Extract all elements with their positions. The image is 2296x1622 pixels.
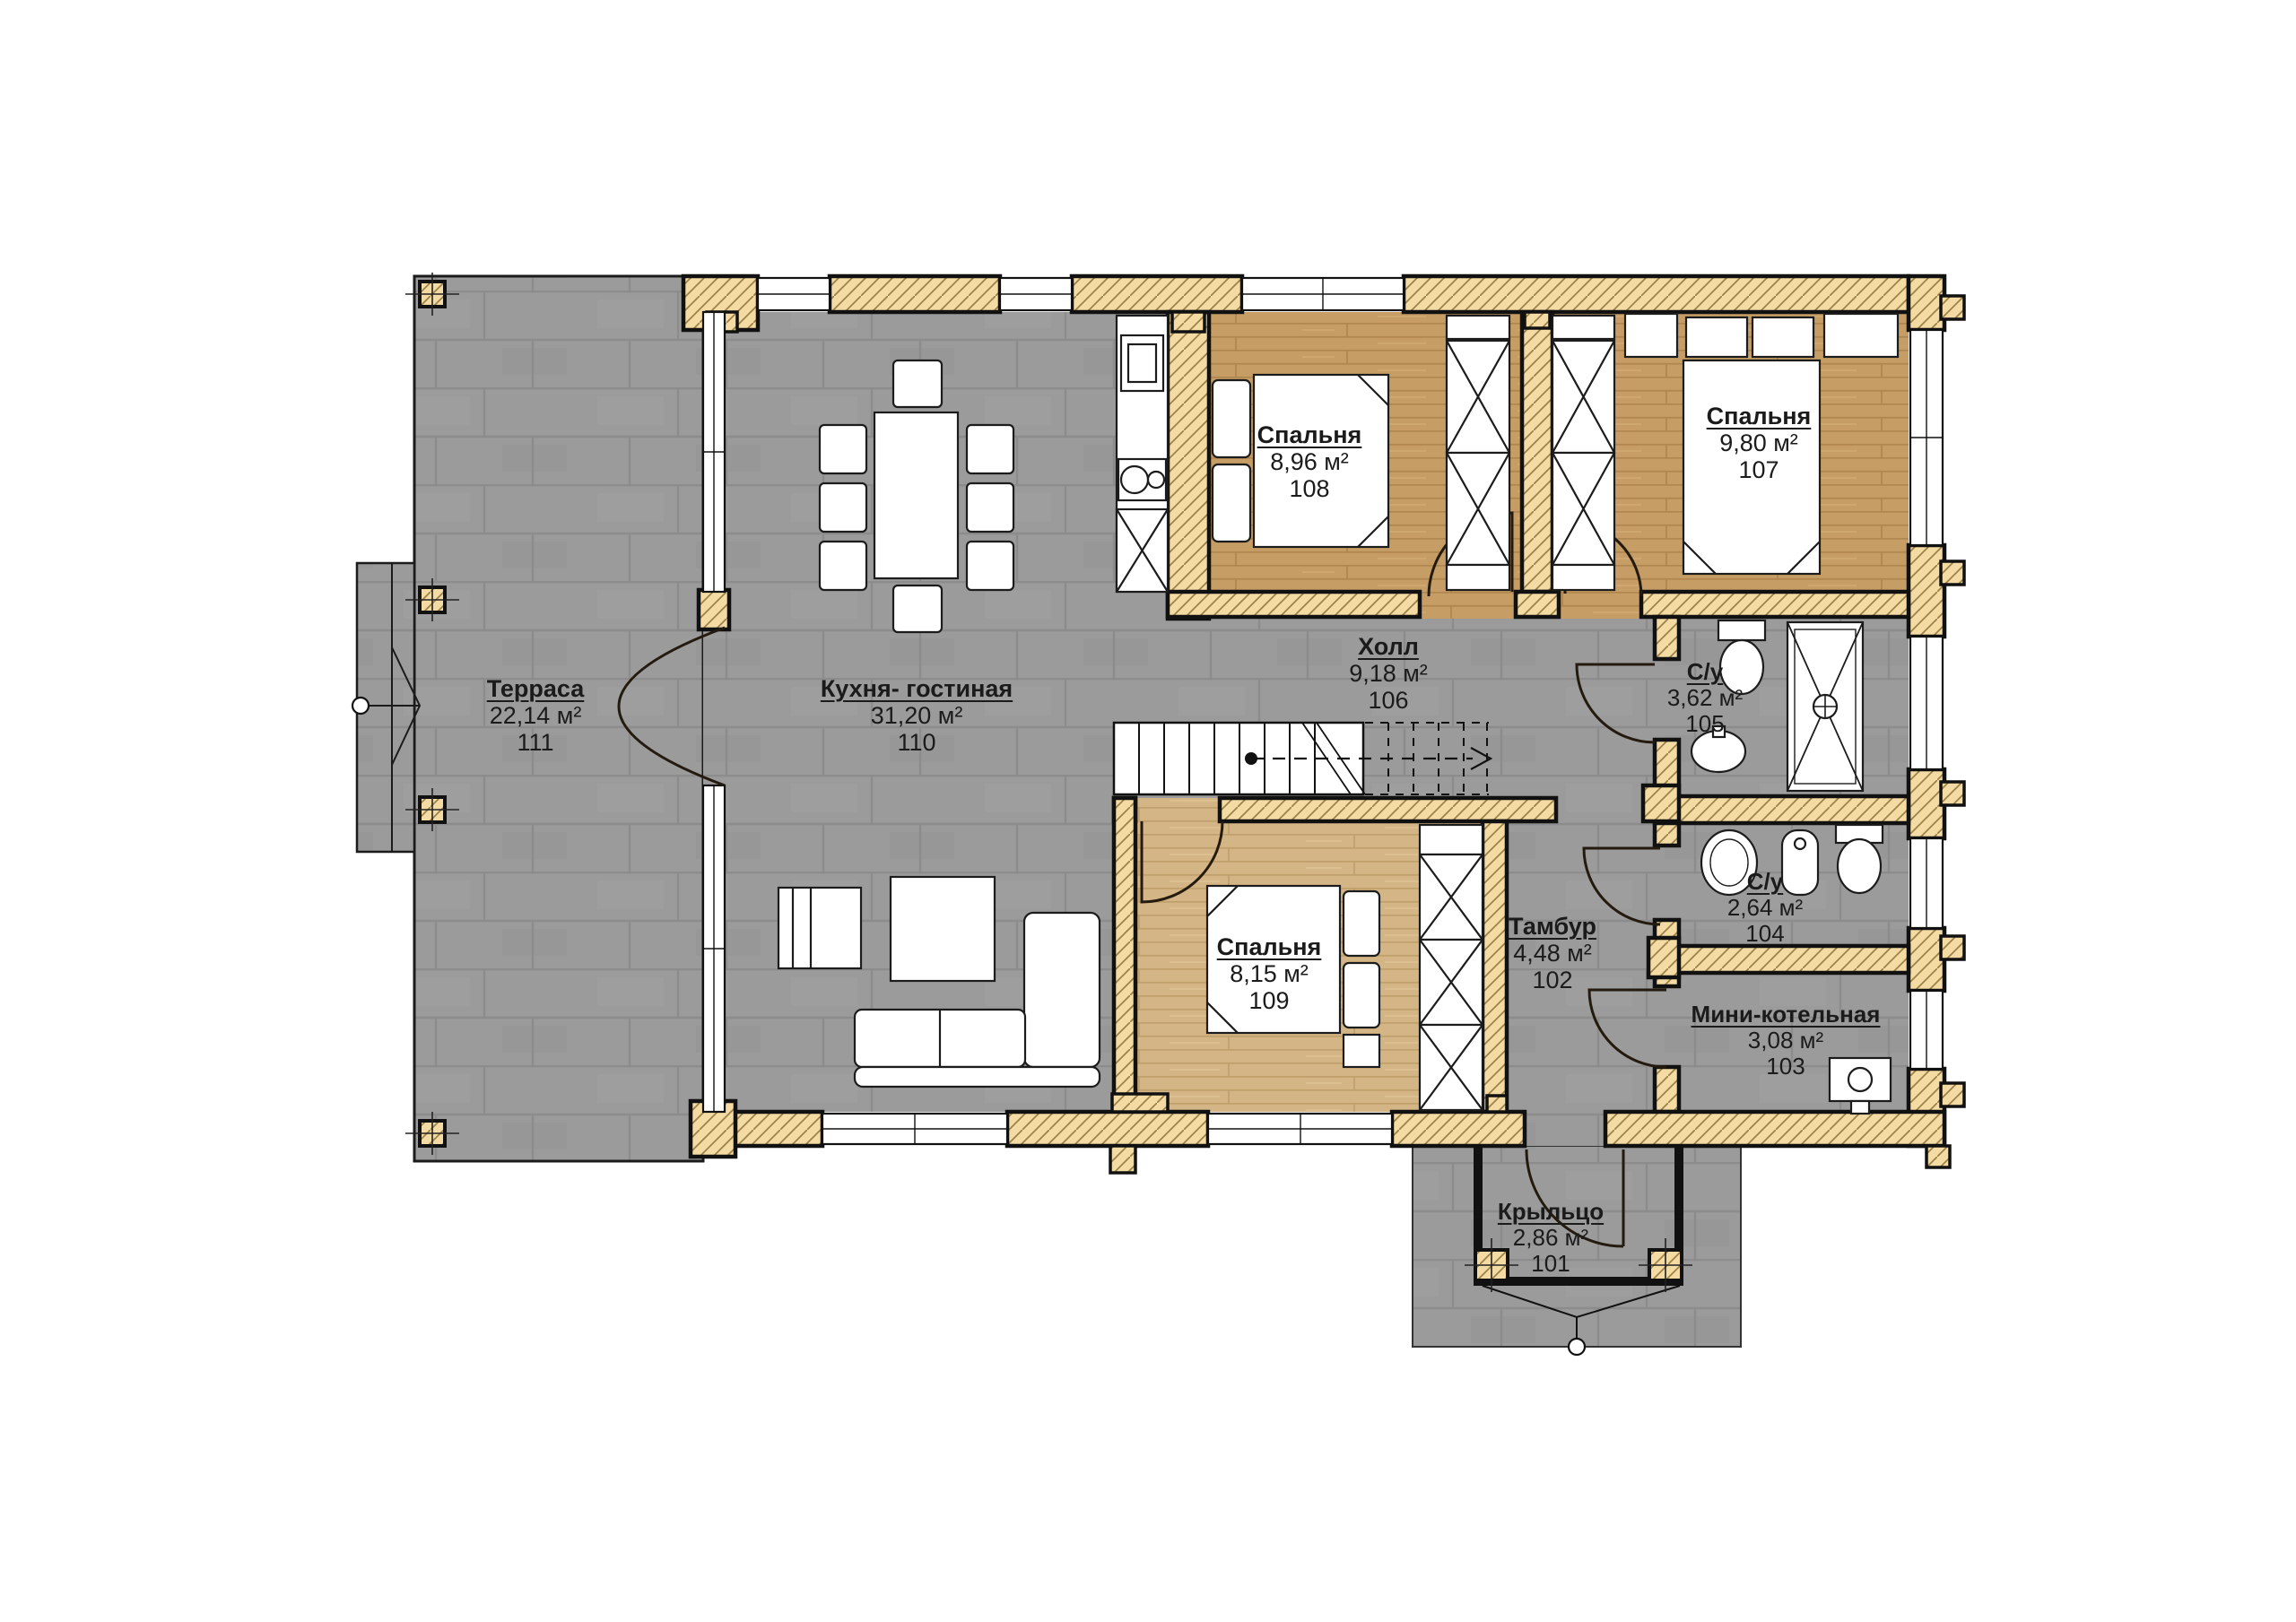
room-number: 110	[821, 729, 1013, 756]
room-name: С/у	[1727, 869, 1803, 895]
shelf	[1447, 565, 1509, 590]
stair-start-dot	[1245, 752, 1257, 765]
tab-4	[1112, 1094, 1168, 1112]
floor-plan-drawing	[0, 0, 2296, 1622]
tab-11	[1941, 936, 1964, 959]
chair	[820, 483, 866, 532]
bidet-faucet	[1795, 838, 1805, 849]
room-area: 3,62 м²	[1667, 685, 1743, 711]
room-area: 8,96 м²	[1257, 448, 1362, 475]
tv-stand	[778, 888, 861, 968]
post-bath104-junction	[1648, 938, 1679, 977]
room-label-106: Холл 9,18 м² 106	[1349, 633, 1428, 714]
wall-top-3	[1404, 276, 1909, 312]
tab-10	[1941, 782, 1964, 805]
window-bottom-bedroom109	[1208, 1114, 1392, 1144]
wall-bottom-4	[1605, 1112, 1944, 1146]
chair	[967, 542, 1013, 590]
tab-8	[1941, 296, 1964, 319]
terrace-entry-marker	[352, 698, 369, 714]
kitchen-counter	[1117, 316, 1168, 592]
room-number: 111	[487, 729, 585, 756]
room-name: Спальня	[1217, 933, 1322, 960]
pillow	[1213, 464, 1250, 542]
room-name: Кухня- гостиная	[821, 675, 1013, 702]
room-number: 102	[1509, 967, 1596, 993]
pillow	[1344, 891, 1379, 956]
nightstand	[1344, 1035, 1379, 1067]
room-number: 101	[1498, 1251, 1604, 1277]
pillow	[1213, 380, 1250, 457]
boiler-pipe	[1851, 1101, 1869, 1114]
wardrobe-bedroom-107	[1552, 316, 1614, 590]
room-area: 31,20 м²	[821, 702, 1013, 729]
room-area: 3,08 м²	[1692, 1028, 1881, 1054]
wall-bottom-2	[1007, 1112, 1208, 1146]
wall-right-1	[1909, 545, 1944, 637]
chair	[893, 360, 942, 407]
wall-bath105-bottom	[1655, 796, 1909, 823]
pillow	[1686, 317, 1747, 357]
window-west-upper	[703, 312, 725, 592]
wall-top-2	[1072, 276, 1242, 312]
wardrobe-bedroom-108	[1447, 316, 1509, 590]
room-label-101: Крыльцо 2,86 м² 101	[1498, 1199, 1604, 1277]
tab-9	[1941, 561, 1964, 585]
room-number: 109	[1217, 987, 1322, 1014]
room-area: 9,18 м²	[1349, 660, 1428, 687]
window-right-boiler	[1910, 991, 1943, 1069]
toilet-tank	[1718, 620, 1765, 640]
post-hall-junction	[1643, 785, 1679, 821]
entry-threshold	[1525, 1112, 1605, 1146]
room-number: 103	[1692, 1054, 1881, 1080]
sink-bowl-large	[1121, 466, 1148, 493]
toilet-bowl	[1838, 839, 1881, 893]
wall-corner-ne	[1909, 276, 1944, 330]
room-label-105: С/у 3,62 м² 105	[1667, 659, 1743, 737]
window-top-bedroom108	[1242, 278, 1404, 310]
shelf	[1552, 316, 1614, 339]
room-label-109: Спальня 8,15 м² 109	[1217, 933, 1322, 1014]
wall-top-1	[830, 276, 1000, 312]
wall-hall-3	[1641, 592, 1909, 617]
tab-2	[1172, 312, 1205, 332]
wall-kitchen-bedroom108	[1168, 312, 1209, 619]
room-number: 107	[1707, 456, 1812, 483]
shelf	[1420, 825, 1483, 854]
room-area: 2,86 м²	[1498, 1225, 1604, 1251]
room-label-104: С/у 2,64 м² 104	[1727, 869, 1803, 947]
wardrobe-bedroom-109	[1420, 825, 1483, 1110]
shelf	[1552, 565, 1614, 590]
room-label-111: Терраса 22,14 м² 111	[487, 675, 585, 756]
tab-6	[1487, 1096, 1507, 1112]
stove-inner	[1128, 344, 1156, 382]
room-area: 4,48 м²	[1509, 940, 1596, 967]
window-right-bath104	[1910, 838, 1943, 928]
room-area: 2,64 м²	[1727, 895, 1803, 921]
tab-5	[1110, 1146, 1135, 1173]
room-label-103: Мини-котельная 3,08 м² 103	[1692, 1002, 1881, 1080]
shelf	[1447, 316, 1509, 339]
wall-bottom-3	[1392, 1112, 1525, 1146]
window-right-bath105	[1910, 637, 1943, 769]
sofa-base	[855, 1067, 1100, 1087]
wall-hall-2	[1516, 592, 1559, 617]
tab-12	[1941, 1083, 1964, 1106]
sofa-chaise	[1024, 913, 1100, 1067]
room-name: Тамбур	[1509, 913, 1596, 940]
dining-table	[874, 412, 958, 578]
room-label-107: Спальня 9,80 м² 107	[1707, 403, 1812, 483]
room-name: Крыльцо	[1498, 1199, 1604, 1225]
tab-3	[1525, 312, 1550, 328]
post-west-mid	[699, 590, 729, 629]
room-area: 8,15 м²	[1217, 960, 1322, 987]
window-right-bedroom107	[1910, 330, 1943, 545]
tab-7	[1926, 1146, 1950, 1167]
room-label-110: Кухня- гостиная 31,20 м² 110	[821, 675, 1013, 756]
chair	[967, 483, 1013, 532]
window-top-1	[758, 278, 830, 310]
room-name: Терраса	[487, 675, 585, 702]
floor-plan-canvas: Терраса 22,14 м² 111 Кухня- гостиная 31,…	[0, 0, 2296, 1622]
room-number: 106	[1349, 687, 1428, 714]
window-top-2	[1000, 278, 1072, 310]
room-label-108: Спальня 8,96 м² 108	[1257, 421, 1362, 502]
nightstand	[1625, 314, 1677, 357]
bedroom-109-threshold	[1135, 798, 1220, 821]
room-label-102: Тамбур 4,48 м² 102	[1509, 913, 1596, 993]
room-name: С/у	[1667, 659, 1743, 685]
wall-vestibule-a	[1655, 823, 1679, 846]
window-west-lower	[703, 785, 725, 1112]
wall-bedroom108-107	[1522, 312, 1552, 592]
wall-right-3	[1909, 928, 1944, 991]
wall-vestibule-c	[1655, 1067, 1679, 1112]
wall-stairs-b	[1220, 798, 1556, 821]
sink-bowl-small	[1148, 472, 1164, 488]
wall-bedroom109-wardrobe	[1483, 821, 1507, 1112]
wall-hall-1	[1168, 592, 1420, 617]
porch-entry-marker	[1569, 1339, 1585, 1355]
coffee-table	[891, 877, 995, 981]
wall-bath104-boiler	[1674, 946, 1909, 973]
room-area: 22,14 м²	[487, 702, 585, 729]
room-name: Мини-котельная	[1692, 1002, 1881, 1028]
room-number: 104	[1727, 921, 1803, 947]
chair	[820, 542, 866, 590]
window-bottom-living	[822, 1114, 1007, 1144]
room-number: 105	[1667, 711, 1743, 737]
nightstand	[1824, 314, 1898, 357]
room-name: Холл	[1349, 633, 1428, 660]
wall-right-2	[1909, 769, 1944, 838]
room-area: 9,80 м²	[1707, 429, 1812, 456]
room-name: Спальня	[1707, 403, 1812, 429]
wall-bath105-a	[1655, 617, 1679, 659]
room-number: 108	[1257, 475, 1362, 502]
pillow	[1752, 317, 1813, 357]
chair	[967, 425, 1013, 473]
pillow	[1344, 963, 1379, 1028]
chair	[820, 425, 866, 473]
room-name: Спальня	[1257, 421, 1362, 448]
chair	[893, 585, 942, 632]
